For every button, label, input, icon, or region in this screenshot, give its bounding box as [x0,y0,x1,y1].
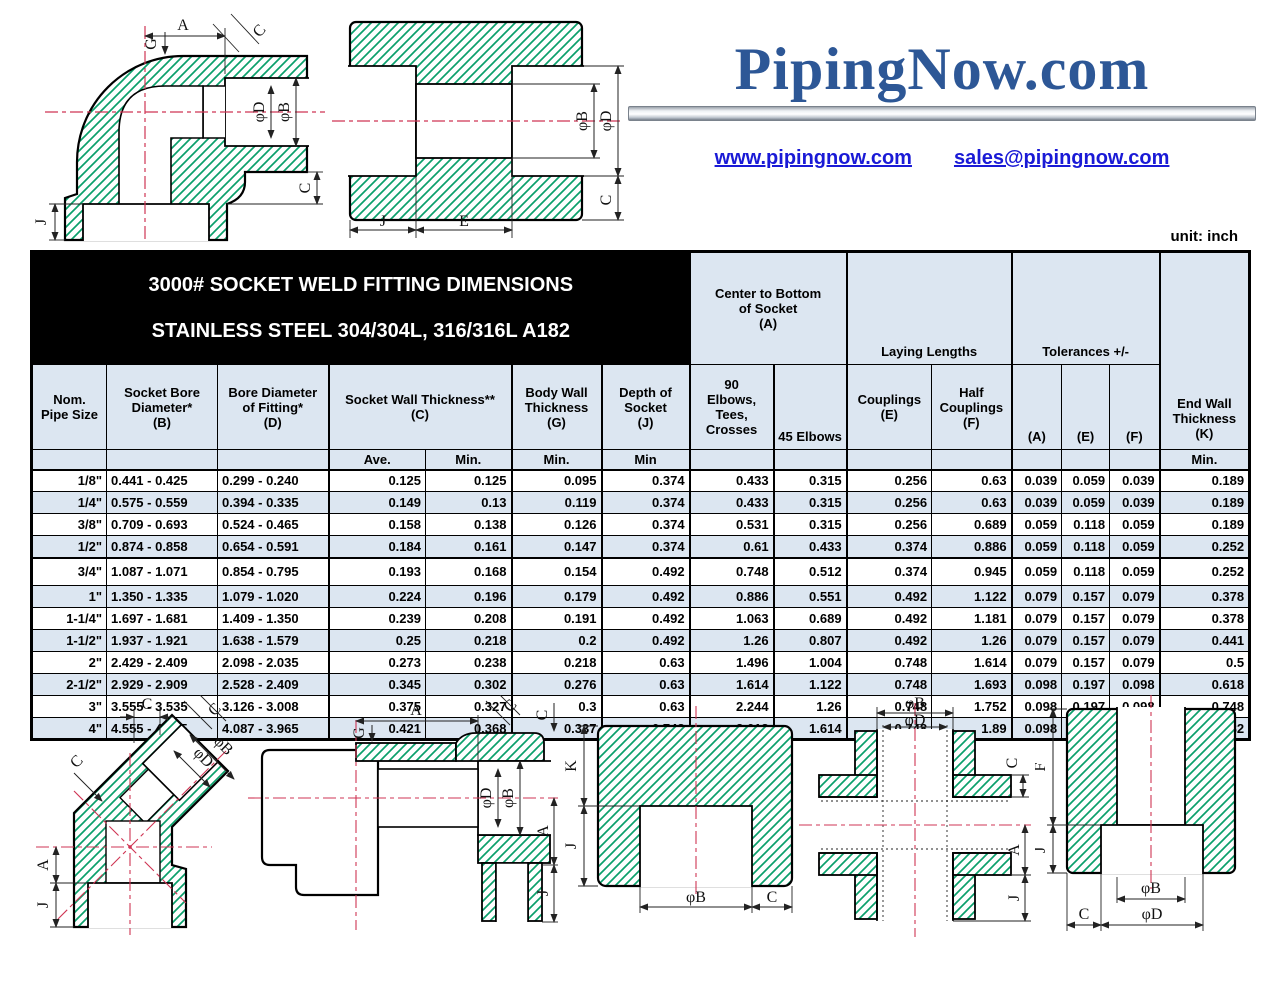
dimension-table-wrap: 3000# SOCKET WELD FITTING DIMENSIONS STA… [30,250,1251,741]
table-cell: 0.63 [932,492,1012,514]
dim-label-f: F [1035,762,1049,771]
table-cell: 0.208 [426,608,512,630]
table-row: 1-1/2"1.937 - 1.9211.638 - 1.5790.250.21… [32,630,1250,652]
table-cell: 0.63 [602,674,690,696]
table-cell [1012,450,1062,470]
dim-label-phib: φB [574,111,591,131]
table-cell: 1/8" [32,470,107,492]
table-cell: 3/4" [32,558,107,586]
drawing-coupling-section: φB φD C J E [332,8,632,243]
table-cell: 0.315 [774,470,847,492]
table-cell: 0.433 [690,492,774,514]
table-cell [1062,450,1110,470]
dim-label-c: C [1004,758,1021,769]
table-cell: 2.429 - 2.409 [107,652,218,674]
table-cell: 0.039 [1012,492,1062,514]
table-row: 1"1.350 - 1.3351.079 - 1.0200.2240.1960.… [32,586,1250,608]
unit-label: unit: inch [1048,228,1238,245]
table-cell: 0.079 [1110,652,1160,674]
table-cell: 0.441 - 0.425 [107,470,218,492]
dim-label-c-bottom: C [297,183,314,194]
dim-label-phib: φB [500,788,517,808]
table-cell: 0.157 [1062,652,1110,674]
table-cell: 0.551 [774,586,847,608]
table-cell: 3/8" [32,514,107,536]
table-cell: 0.126 [512,514,602,536]
table-row: 3/8"0.709 - 0.6930.524 - 0.4650.1580.138… [32,514,1250,536]
table-cell: 0.492 [847,608,932,630]
table-cell: 0.197 [1062,674,1110,696]
dim-label-k: K [563,760,580,772]
table-row: 2"2.429 - 2.4092.098 - 2.0350.2730.2380.… [32,652,1250,674]
table-cell: 0.125 [329,470,426,492]
wall-hatched [953,853,1011,875]
table-cell: 0.441 [1160,630,1250,652]
table-cell: 1/2" [32,536,107,558]
table-cell: 2.098 - 2.035 [218,652,329,674]
table-cell: 1" [32,586,107,608]
table-cell: 0.748 [847,652,932,674]
table-cell: 1.693 [932,674,1012,696]
table-cell: 0.239 [329,608,426,630]
table-cell: 0.118 [1062,514,1110,536]
table-cell: 0.256 [847,514,932,536]
table-cell: 0.079 [1012,586,1062,608]
table-cell: 0.079 [1012,652,1062,674]
table-cell [32,450,107,470]
table-cell: 0.378 [1160,586,1250,608]
table-cell: 0.059 [1012,558,1062,586]
wall-hatched [819,853,877,875]
table-cell: 0.63 [932,470,1012,492]
table-cell [218,450,329,470]
branch-bore [496,863,528,922]
dim-label-c: C [767,889,778,906]
table-cell: 1.26 [932,630,1012,652]
dim-label-c: C [1079,906,1090,923]
dim-label-phib: φB [686,889,706,906]
table-cell: 0.157 [1062,608,1110,630]
website-link[interactable]: www.pipingnow.com [715,147,912,169]
table-cell [107,450,218,470]
socket-bore-bottom [83,204,209,241]
table-cell: 0.378 [1160,608,1250,630]
table-cell: 1.496 [690,652,774,674]
dim-label-c-top: C [142,696,153,713]
drawing-tee-section: A G C C φD φB A J [248,695,558,940]
header-depth-socket: Depth of Socket (J) [602,365,690,450]
dim-label-a: A [177,17,189,34]
logo-block: PipingNow.com www.pipingnow.comsales@pip… [628,36,1256,170]
table-cell: 0.039 [1110,492,1160,514]
table-title: 3000# SOCKET WELD FITTING DIMENSIONS STA… [32,252,690,365]
dim-label-phid: φD [251,102,268,123]
dim-label-a: A [410,702,422,719]
table-cell: 0.512 [774,558,847,586]
table-cell: 0.196 [426,586,512,608]
table-cell: 0.689 [774,608,847,630]
table-cell: 1.087 - 1.071 [107,558,218,586]
table-title-line1: 3000# SOCKET WELD FITTING DIMENSIONS [35,270,687,301]
dimension-table: 3000# SOCKET WELD FITTING DIMENSIONS STA… [30,250,1251,741]
leader-line [213,24,239,52]
dim-label-phib: φB [1141,880,1161,897]
table-cell: 0.374 [602,536,690,558]
header-tol-f: (F) [1110,365,1160,450]
table-cell: 0.492 [602,608,690,630]
wall-hatched [819,775,877,797]
table-cell: 0.138 [426,514,512,536]
table-row: 1/8"0.441 - 0.4250.299 - 0.2400.1250.125… [32,470,1250,492]
table-cell: 0.193 [329,558,426,586]
header-half-couplings: Half Couplings (F) [932,365,1012,450]
dim-label-j: J [35,902,52,908]
dim-label-a-right: A [535,825,552,837]
table-cell: 0.179 [512,586,602,608]
table-cell: 0.118 [1062,536,1110,558]
table-cell: 0.394 - 0.335 [218,492,329,514]
table-cell: 0.374 [602,470,690,492]
dim-label-phib: φB [210,733,236,759]
table-cell: 2" [32,652,107,674]
table-cell: 0.147 [512,536,602,558]
table-cell: 0.079 [1110,586,1160,608]
table-cell: 0.059 [1062,492,1110,514]
table-row: 1/4"0.575 - 0.5590.394 - 0.3350.1490.130… [32,492,1250,514]
table-cell: 1.638 - 1.579 [218,630,329,652]
table-cell: 0.492 [602,586,690,608]
table-cell: 0.238 [426,652,512,674]
table-cell: 0.039 [1012,470,1062,492]
header-45-elbows: 45 Elbows [774,365,847,450]
header-tol-e: (E) [1062,365,1110,450]
header-90-elbows: 90 Elbows, Tees, Crosses [690,365,774,450]
table-cell: 0.433 [690,470,774,492]
table-cell: 0.492 [602,630,690,652]
drawing-90-elbow-section: A C G φD φB C J [15,8,330,243]
table-cell: 2-1/2" [32,674,107,696]
table-cell: 0.079 [1012,630,1062,652]
table-cell: 0.689 [932,514,1012,536]
table-cell: 0.149 [329,492,426,514]
table-cell: 0.61 [690,536,774,558]
socket-bore [1101,825,1203,874]
table-cell: 0.252 [1160,558,1250,586]
dim-label-a: A [35,859,52,871]
table-cell: 2.929 - 2.909 [107,674,218,696]
table-cell [690,450,774,470]
table-row: 1-1/4"1.697 - 1.6811.409 - 1.3500.2390.2… [32,608,1250,630]
table-row: 2-1/2"2.929 - 2.9092.528 - 2.4090.3450.3… [32,674,1250,696]
table-cell: 1.614 [932,652,1012,674]
table-cell: 0.575 - 0.559 [107,492,218,514]
table-cell [1110,450,1160,470]
dim-label-j: J [535,890,552,896]
table-cell: 0.059 [1012,536,1062,558]
dim-label-a: A [1006,844,1023,856]
table-cell: 0.524 - 0.465 [218,514,329,536]
table-cell: 0.079 [1110,630,1160,652]
table-cell: 0.157 [1062,586,1110,608]
table-cell: 0.63 [602,652,690,674]
table-cell: 0.059 [1012,514,1062,536]
table-cell: 0.224 [329,586,426,608]
dim-label-phid: φD [598,111,615,132]
table-cell: 0.25 [329,630,426,652]
dim-line-c-left [74,773,102,801]
table-cell: Min. [1160,450,1250,470]
table-cell: 0.125 [426,470,512,492]
dim-label-c-right: C [534,710,551,721]
bottom-wall-hatched [478,835,550,863]
table-cell: 0.315 [774,492,847,514]
table-cell: 0.492 [602,558,690,586]
header-socket-wall: Socket Wall Thickness** (C) [329,365,512,450]
table-title-line2: STAINLESS STEEL 304/304L, 316/316L A182 [35,316,687,347]
drawing-cap-section: K J φB C [560,698,810,943]
table-cell: 0.191 [512,608,602,630]
drawing-cross-section: φB φD C A J [795,695,1035,945]
table-cell [932,450,1012,470]
dim-label-c: C [598,195,615,206]
table-cell: 0.5 [1160,652,1250,674]
table-cell: 0.098 [1012,674,1062,696]
table-cell: 0.095 [512,470,602,492]
table-cell: 0.945 [932,558,1012,586]
hub-hatched [456,733,544,761]
table-cell: 0.492 [847,586,932,608]
table-cell: 1.614 [690,674,774,696]
dim-label-c-left: C [67,752,87,772]
drawing-half-coupling-section: F J φB C φD [1035,695,1255,945]
table-cell: 2.528 - 2.409 [218,674,329,696]
table-cell: 0.374 [602,514,690,536]
table-cell: 0.276 [512,674,602,696]
table-cell: 1.122 [932,586,1012,608]
dim-label-j: J [1035,847,1049,853]
table-cell: 0.059 [1110,514,1160,536]
table-cell: 0.189 [1160,492,1250,514]
subheader-row: Ave.Min.Min. Min Min. [32,450,1250,470]
table-cell: 0.345 [329,674,426,696]
table-cell: 0.079 [1110,608,1160,630]
table-cell: 0.618 [1160,674,1250,696]
table-cell: 0.886 [932,536,1012,558]
table-cell: 1.122 [774,674,847,696]
tee-body-outline [262,750,378,895]
table-cell: 0.218 [426,630,512,652]
table-cell: 0.189 [1160,470,1250,492]
contact-links: www.pipingnow.comsales@pipingnow.com [628,147,1256,170]
table-cell: 1.350 - 1.335 [107,586,218,608]
logo-divider-bar [628,106,1256,121]
table-cell: 1.004 [774,652,847,674]
header-end-wall: End Wall Thickness (K) [1160,252,1250,450]
table-cell: 0.374 [847,558,932,586]
header-band-1: 3000# SOCKET WELD FITTING DIMENSIONS STA… [32,252,1250,365]
table-cell: 0.315 [774,514,847,536]
wall-hatched [953,775,1011,797]
table-cell: 1.937 - 1.921 [107,630,218,652]
table-cell: 0.13 [426,492,512,514]
dim-label-e: E [459,213,469,230]
table-cell: 0.256 [847,492,932,514]
table-cell: 0.154 [512,558,602,586]
logo-text: PipingNow.com [628,36,1256,102]
table-cell: 0.157 [1062,630,1110,652]
table-cell: 0.119 [512,492,602,514]
email-link[interactable]: sales@pipingnow.com [954,147,1169,169]
table-cell: 0.252 [1160,536,1250,558]
table-cell: 0.654 - 0.591 [218,536,329,558]
table-cell: 0.161 [426,536,512,558]
table-cell: 1-1/4" [32,608,107,630]
dim-label-phid: φD [1142,906,1163,923]
dim-label-g: G [143,38,160,50]
table-cell: 0.854 - 0.795 [218,558,329,586]
header-body-wall: Body Wall Thickness (G) [512,365,602,450]
table-cell: Min. [426,450,512,470]
table-row: 1/2"0.874 - 0.8580.654 - 0.5910.1840.161… [32,536,1250,558]
table-cell: 0.886 [690,586,774,608]
header-tol-a: (A) [1012,365,1062,450]
top-wall-hatched [356,743,456,761]
table-cell: 0.807 [774,630,847,652]
table-cell [774,450,847,470]
table-cell: 1-1/2" [32,630,107,652]
table-cell: Ave. [329,450,426,470]
table-cell: 0.059 [1062,470,1110,492]
dim-label-g: G [351,727,368,739]
table-cell: Min [602,450,690,470]
table-cell: Min. [512,450,602,470]
table-cell: 1.26 [690,630,774,652]
table-cell: 0.531 [690,514,774,536]
table-cell: 0.302 [426,674,512,696]
dim-label-j: J [563,843,580,849]
table-cell: 0.492 [847,630,932,652]
header-center-to-bottom: Center to Bottom of Socket (A) [690,252,847,365]
table-cell: 0.433 [774,536,847,558]
branch-wall-hatched [482,863,496,921]
dim-label-phid: φD [905,712,926,729]
header-bore-diameter: Bore Diameter of Fitting* (D) [218,365,329,450]
table-cell: 0.184 [329,536,426,558]
table-cell: 0.098 [1110,674,1160,696]
table-cell: 1/4" [32,492,107,514]
dim-label-j: J [33,219,50,225]
table-cell: 1.697 - 1.681 [107,608,218,630]
table-cell [847,450,932,470]
table-cell: 0.118 [1062,558,1110,586]
header-socket-bore: Socket Bore Diameter* (B) [107,365,218,450]
table-cell: 0.039 [1110,470,1160,492]
table-cell: 0.273 [329,652,426,674]
dim-label-phid: φD [478,788,495,809]
table-cell: 0.874 - 0.858 [107,536,218,558]
table-cell: 0.218 [512,652,602,674]
table-cell: 1.063 [690,608,774,630]
table-cell: 0.158 [329,514,426,536]
table-cell: 0.374 [847,536,932,558]
table-cell: 0.168 [426,558,512,586]
table-cell: 0.299 - 0.240 [218,470,329,492]
table-cell: 0.189 [1160,514,1250,536]
header-laying-lengths: Laying Lengths [847,252,1012,365]
table-cell: 0.079 [1012,608,1062,630]
drawing-45-elbow-section: C C C φB φD A J [22,695,247,940]
dim-label-j: J [1006,895,1023,901]
table-cell: 0.059 [1110,558,1160,586]
table-row: 3/4"1.087 - 1.0710.854 - 0.7950.1930.168… [32,558,1250,586]
dim-label-phib: φB [905,695,925,712]
header-band-2: Nom. Pipe Size Socket Bore Diameter* (B)… [32,365,1250,450]
table-cell: 0.256 [847,470,932,492]
table-cell: 0.748 [847,674,932,696]
dim-label-j: J [380,213,386,230]
table-cell: 1.079 - 1.020 [218,586,329,608]
header-couplings: Couplings (E) [847,365,932,450]
table-cell: 0.748 [690,558,774,586]
bore-connector [106,821,160,883]
table-cell: 0.709 - 0.693 [107,514,218,536]
table-cell: 0.2 [512,630,602,652]
table-cell: 0.059 [1110,536,1160,558]
table-cell: 1.409 - 1.350 [218,608,329,630]
header-nom-pipe-size: Nom. Pipe Size [32,365,107,450]
table-cell: 1.181 [932,608,1012,630]
table-cell: 0.374 [602,492,690,514]
dim-label-phib: φB [276,102,293,122]
header-tolerances: Tolerances +/- [1012,252,1160,365]
